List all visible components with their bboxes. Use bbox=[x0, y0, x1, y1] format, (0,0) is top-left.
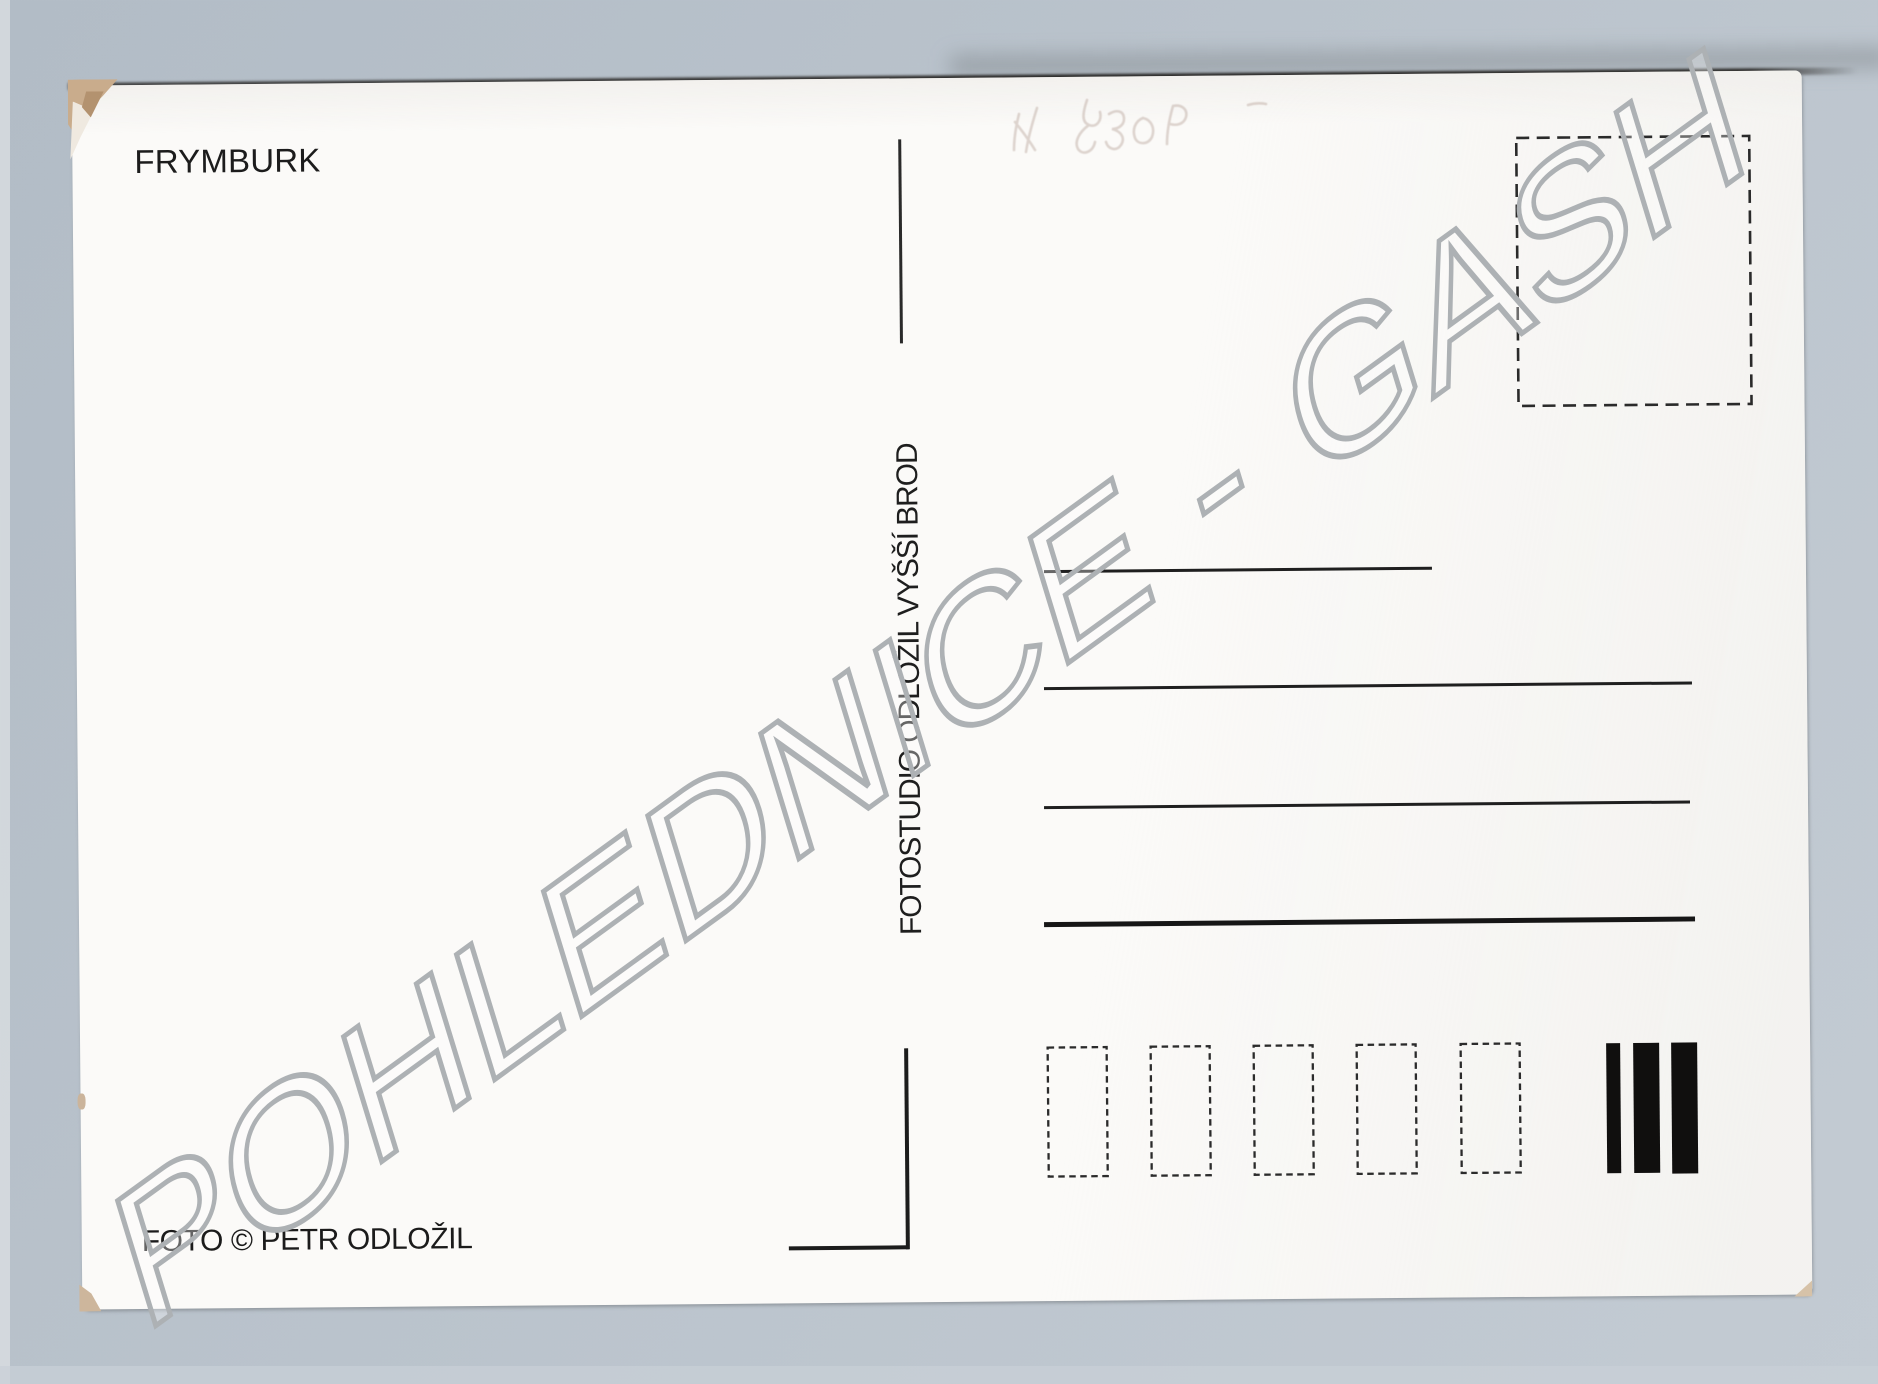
svg-text:POHLEDNICE - GASH: POHLEDNICE - GASH bbox=[93, 1, 1766, 1374]
